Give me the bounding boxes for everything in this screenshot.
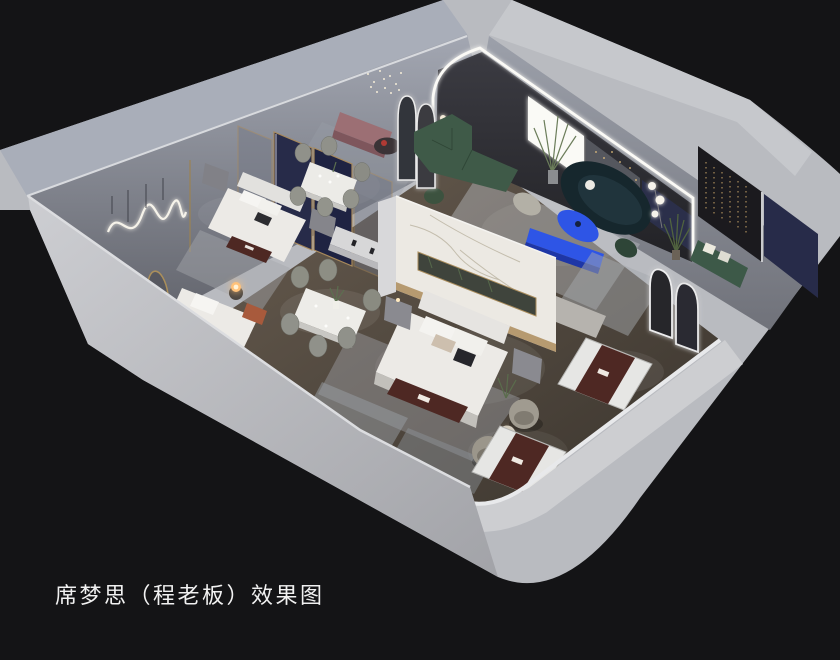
dining-chair [343,190,359,209]
dining-chair [291,266,309,288]
table-vase [333,301,339,309]
dining-chair [309,335,327,357]
plant-pot [672,250,680,260]
scene-3d-render [0,0,840,660]
table-decor [575,221,581,227]
render-caption: 席梦思（程老板）效果图 [55,584,325,610]
arch-mirror-icon [676,283,698,352]
barrel-chair-seat [514,411,534,425]
arch-mirror-icon [650,269,672,338]
dining-chair [319,259,337,281]
arch-mirror-icon [398,96,416,180]
nightstand-lamp [396,298,400,302]
dining-chair [295,144,311,163]
round-coffee-table-dark [374,138,400,155]
dining-chair [321,137,337,156]
red-bowl [381,140,387,146]
lamp-core [234,285,239,290]
plant-pot [548,170,558,184]
dining-chair [317,198,333,217]
dining-chair [281,313,299,335]
render-canvas: 席梦思（程老板）效果图 [0,0,840,660]
green-armchair [424,188,444,204]
dining-chair [363,289,381,311]
dining-chair [338,327,356,349]
sofa-white-pillow [585,180,595,190]
side-panel-white [378,196,396,298]
dining-chair [354,163,370,182]
dining-chair [290,187,306,206]
